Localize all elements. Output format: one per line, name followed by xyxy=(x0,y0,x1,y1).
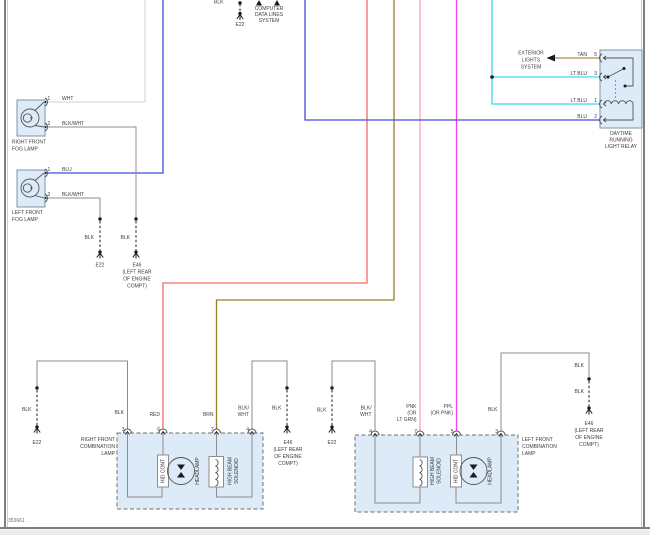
daytime-running-light-relay: TAN 5 LT BLU 3 LT BLU 1 BLU 2 DAYTIME RU… xyxy=(571,50,643,150)
combo-left-hid-label: HID CONT xyxy=(454,459,460,483)
combo-left-pin5-num: 5 xyxy=(451,429,454,435)
fog-g1-wire-label: BLK xyxy=(85,235,95,241)
combo-left-name-line1: LEFT FRONT xyxy=(522,437,553,443)
fog-left-pin1-num: 1 xyxy=(48,167,51,173)
fog-left-name-line2: FOG LAMP xyxy=(12,217,39,223)
wiring-diagram-canvas: BLK E22 COMPUTER DATA LINES SYSTEM EXTER… xyxy=(0,0,650,535)
exterior-line2: LIGHTS xyxy=(522,58,541,64)
wire-combo-right-pin3-gnd xyxy=(37,361,128,429)
fog-right-pin1-wire: WHT xyxy=(62,96,73,102)
combo-right-gl-wire: BLK xyxy=(22,407,32,413)
relay-name-line2: RUNNING xyxy=(609,138,632,144)
combo-left-solenoid-label1: HIGH BEAM xyxy=(430,457,436,485)
combo-left-pin5-wire1: PPL xyxy=(444,404,454,410)
combo-left-pin7-num: 7 xyxy=(414,429,417,435)
combo-right-pin4-wire1: BLK/ xyxy=(238,406,249,412)
combo-left-pin7-wire1: PNK xyxy=(406,404,417,410)
combo-left-ground-e22: BLK E22 xyxy=(317,386,337,446)
left-front-fog-lamp: 1 BLU 2 BLK/WHT LEFT FRONT FOG LAMP xyxy=(12,167,84,223)
combo-right-name-line2: COMBINATION xyxy=(80,444,115,450)
fog-g2-wire-label: BLK xyxy=(121,235,131,241)
right-front-fog-lamp: 1 WHT 2 BLK/WHT RIGHT FRONT FOG LAMP xyxy=(12,96,84,153)
combo-left-solenoid-label2: SOLENOID xyxy=(437,458,443,484)
relay-pin3-num: 3 xyxy=(594,71,597,77)
combo-right-pin7-wire: BRN xyxy=(203,412,214,418)
wires xyxy=(37,0,601,431)
combo-right-pin6-num: 6 xyxy=(157,427,160,433)
computer-system-line3: SYSTEM xyxy=(259,18,280,24)
combo-left-pin4-num: 4 xyxy=(369,429,372,435)
relay-name-line3: LIGHT RELAY xyxy=(605,144,638,150)
combo-left-gl-id: E22 xyxy=(328,440,337,446)
fog-right-name-line2: FOG LAMP xyxy=(12,147,39,153)
combo-right-gr-loc3: COMPT) xyxy=(278,461,298,467)
lt-blu-junction-dot xyxy=(490,75,494,79)
combo-left-gr-wire-upper: BLK xyxy=(575,363,585,369)
combo-right-gr-loc2: OF ENGINE xyxy=(274,454,302,460)
combo-left-gr-loc2: OF ENGINE xyxy=(575,435,603,441)
fog-g1-id: E22 xyxy=(96,263,105,269)
combo-right-gr-wire: BLK xyxy=(272,406,282,412)
up-arrow-icon xyxy=(274,0,280,6)
fog-left-pin2-wire: BLK/WHT xyxy=(62,192,84,198)
combo-left-name-line2: COMBINATION xyxy=(522,444,557,450)
wire-red xyxy=(163,0,367,429)
combo-right-gr-loc1: (LEFT REAR xyxy=(273,447,302,453)
ground-symbol xyxy=(133,250,139,258)
ground-symbol xyxy=(586,406,592,414)
combo-right-name-line3: LAMP xyxy=(101,451,115,457)
relay-pin5-wire: TAN xyxy=(577,52,587,58)
wire-combo-left-pin4-gnd xyxy=(332,361,375,431)
up-arrow-icon xyxy=(256,0,262,6)
combo-left-headlamp-label: HEADLAMP xyxy=(488,457,494,485)
high-beam-solenoid-box xyxy=(209,457,224,488)
combo-left-pin7-wire2: (OR xyxy=(407,411,417,417)
ground-symbol xyxy=(329,425,335,433)
ground-symbol xyxy=(284,425,290,433)
left-arrow-icon xyxy=(547,55,556,62)
ground-symbol-top-e22 xyxy=(237,12,243,20)
combo-right-pin4-wire2: WHT xyxy=(238,412,249,418)
relay-pin5-num: 5 xyxy=(594,52,597,58)
combo-left-gr-loc1: (LEFT REAR xyxy=(574,428,603,434)
ground-symbol xyxy=(34,425,40,433)
combo-right-pin4-num: 4 xyxy=(246,427,249,433)
combo-right-solenoid-label1: HIGH BEAM xyxy=(228,457,234,485)
combo-left-pin3-wire: BLK xyxy=(488,407,498,413)
relay-pin1-wire: LT BLU xyxy=(571,98,588,104)
ground-symbol xyxy=(97,250,103,258)
fog-right-pin1-num: 1 xyxy=(48,96,51,102)
diagram-number: 353661 xyxy=(8,518,25,524)
computer-data-lines-reference: BLK E22 COMPUTER DATA LINES SYSTEM xyxy=(214,0,284,28)
combo-right-gl-id: E22 xyxy=(33,440,42,446)
fog-ground-e22: BLK E22 xyxy=(85,217,105,268)
fog-left-pin2-num: 2 xyxy=(48,192,51,198)
fog-left-name-line1: LEFT FRONT xyxy=(12,210,43,216)
combo-right-pin6-wire: RED xyxy=(149,412,160,418)
combo-left-pin4-wire2: WHT xyxy=(360,412,371,418)
top-ground-id: E22 xyxy=(236,22,245,28)
fog-right-pin2-num: 2 xyxy=(48,121,51,127)
fog-g2-loc2: OF ENGINE xyxy=(123,277,151,283)
combo-left-gr-id: E46 xyxy=(585,421,594,427)
combo-left-pin4-wire1: BLK/ xyxy=(361,406,372,412)
combo-right-ground-e46: BLK E46 (LEFT REAR OF ENGINE COMPT) xyxy=(272,386,303,467)
combo-right-headlamp-label: HEADLAMP xyxy=(195,457,201,485)
top-cut-wire-label: BLK xyxy=(214,0,224,6)
fog-right-name-line1: RIGHT FRONT xyxy=(12,140,46,146)
exterior-line1: EXTERIOR xyxy=(518,51,544,57)
combo-left-pin7-wire3: LT GRN) xyxy=(397,417,417,423)
exterior-line3: SYSTEM xyxy=(521,65,542,71)
combo-left-gl-wire: BLK xyxy=(317,408,327,414)
combo-right-hid-label: HID CONT xyxy=(161,459,167,483)
right-front-combination-lamp: HID CONT HEADLAMP HIGH BEAM SOLENOID 3 6… xyxy=(80,406,263,510)
combo-right-ground-e22: BLK E22 xyxy=(22,386,42,446)
fog-right-pin2-wire: BLK/WHT xyxy=(62,121,84,127)
relay-pin3-wire: LT BLU xyxy=(571,71,588,77)
fog-g2-loc3: COMPT) xyxy=(127,284,147,290)
combo-left-pin3-num: 3 xyxy=(495,429,498,435)
relay-pin2-wire: BLU xyxy=(577,114,587,120)
combo-right-pin3-wire: BLK xyxy=(115,410,125,416)
wiring-diagram-page: BLK E22 COMPUTER DATA LINES SYSTEM EXTER… xyxy=(0,0,650,535)
relay-pin2-num: 2 xyxy=(594,114,597,120)
exterior-lights-reference: EXTERIOR LIGHTS SYSTEM xyxy=(518,51,555,71)
combo-left-gr-loc3: COMPT) xyxy=(579,442,599,448)
fog-g2-loc1: (LEFT REAR xyxy=(122,270,151,276)
combo-right-solenoid-label2: SOLENOID xyxy=(234,458,240,484)
wire-combo-right-pin4-gnd xyxy=(252,361,287,429)
combo-right-pin3-num: 3 xyxy=(122,427,125,433)
wire-blkwht-left-fog xyxy=(46,198,100,219)
combo-left-gr-wire-lower: BLK xyxy=(575,389,585,395)
fog-left-pin1-wire: BLU xyxy=(62,167,72,173)
combo-left-pin5-wire2: (OR PNK) xyxy=(431,411,454,417)
combo-left-name-line3: LAMP xyxy=(522,451,536,457)
wire-blu-relay xyxy=(305,0,601,120)
fog-ground-e46: BLK E46 (LEFT REAR OF ENGINE COMPT) xyxy=(121,217,152,289)
combo-right-pin7-num: 7 xyxy=(211,427,214,433)
combo-right-name-line1: RIGHT FRONT xyxy=(81,437,115,443)
wire-wht xyxy=(46,0,145,102)
relay-pin1-num: 1 xyxy=(594,98,597,104)
fog-g2-id: E46 xyxy=(133,263,142,269)
relay-name-line1: DAYTIME xyxy=(610,131,633,137)
combo-right-gr-id: E46 xyxy=(284,440,293,446)
